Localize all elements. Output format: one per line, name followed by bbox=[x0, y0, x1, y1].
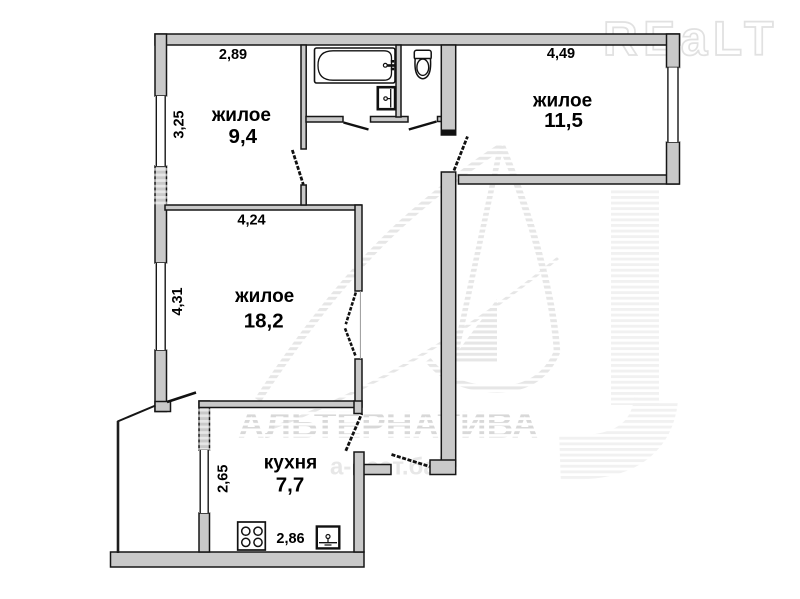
svg-text:жилое: жилое bbox=[234, 286, 294, 307]
svg-text:4,31: 4,31 bbox=[170, 287, 186, 315]
svg-text:11,5: 11,5 bbox=[544, 109, 583, 132]
svg-text:3,25: 3,25 bbox=[172, 110, 188, 138]
svg-text:18,2: 18,2 bbox=[244, 309, 284, 332]
svg-text:жилое: жилое bbox=[211, 105, 271, 126]
svg-text:7,7: 7,7 bbox=[276, 474, 305, 497]
svg-text:2,89: 2,89 bbox=[219, 47, 247, 63]
svg-text:АЛЬТЕРНАТИВА: АЛЬТЕРНАТИВА bbox=[238, 405, 538, 446]
svg-text:кухня: кухня bbox=[264, 452, 317, 473]
svg-text:4,24: 4,24 bbox=[237, 212, 265, 228]
svg-text:4,49: 4,49 bbox=[547, 46, 575, 62]
svg-text:2,65: 2,65 bbox=[215, 465, 231, 493]
svg-text:2,86: 2,86 bbox=[276, 531, 304, 547]
svg-text:9,4: 9,4 bbox=[229, 125, 258, 148]
